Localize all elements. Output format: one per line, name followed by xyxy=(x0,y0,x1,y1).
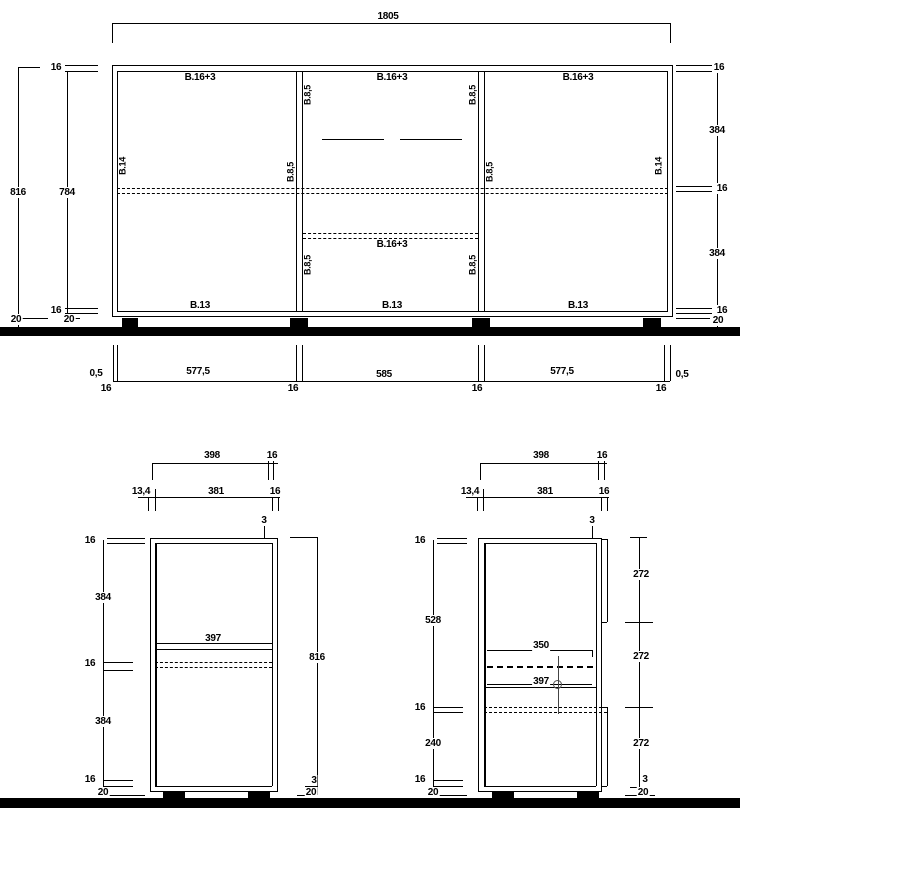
dim-tick xyxy=(433,707,463,708)
dim-opening-height: 384 xyxy=(94,592,112,603)
dim-shelf-depth: 397 xyxy=(532,676,550,687)
dim-drawer-depth: 350 xyxy=(532,640,550,651)
hidden-line xyxy=(117,188,668,189)
hidden-line xyxy=(155,662,272,663)
board-label-side: B.14 xyxy=(654,157,665,175)
dim-line-overall-width xyxy=(112,23,670,24)
dim-upper-opening: 528 xyxy=(424,615,442,626)
dim-tick xyxy=(676,313,712,314)
dim-line-right xyxy=(717,67,718,328)
dim-center-bay-width: 585 xyxy=(375,369,393,380)
dim-front-height: 272 xyxy=(632,738,650,749)
dim-panel-thickness: 16 xyxy=(51,305,62,316)
side-section-outline xyxy=(150,538,278,792)
shelf-edge-line xyxy=(322,139,384,140)
hidden-line xyxy=(484,707,607,708)
board-label-divider: B.8,5 xyxy=(468,85,479,105)
top-panel-line xyxy=(484,543,596,544)
side-section-outline xyxy=(478,538,602,792)
dim-tick xyxy=(625,622,653,623)
dim-line-left xyxy=(103,540,104,795)
dim-panel-thickness: 16 xyxy=(716,183,729,194)
dim-panel-thickness: 16 xyxy=(101,383,112,394)
extension-line xyxy=(117,345,118,381)
board-label-base: B.13 xyxy=(382,300,402,311)
dim-overall-height: 816 xyxy=(9,187,27,198)
dim-tick xyxy=(107,543,145,544)
board-label-base: B.13 xyxy=(568,300,588,311)
dim-panel-thickness: 16 xyxy=(85,535,96,546)
dim-opening-height: 384 xyxy=(94,716,112,727)
extension-line xyxy=(664,345,665,381)
dim-side-depth: 398 xyxy=(204,450,220,461)
dim-tick xyxy=(592,650,593,657)
board-label-center-shelf: B.16+3 xyxy=(377,239,408,250)
dim-tick xyxy=(103,662,133,663)
shelf-line xyxy=(155,649,272,650)
dim-tick xyxy=(65,308,98,309)
top-flap-front-line xyxy=(601,622,607,623)
dim-lower-opening: 240 xyxy=(424,738,442,749)
top-flap-front-line xyxy=(601,539,607,540)
dim-side-bay-width: 577,5 xyxy=(550,366,574,377)
dim-back-inset: 13,4 xyxy=(460,486,480,497)
dim-tick xyxy=(437,538,467,539)
dim-tick xyxy=(480,463,481,480)
dim-plinth-height: 20 xyxy=(637,787,650,798)
dim-panel-thickness: 16 xyxy=(269,486,282,497)
dim-tick xyxy=(676,318,710,319)
dim-tick xyxy=(676,71,712,72)
dim-front-gap: 3 xyxy=(589,515,594,526)
top-flap-front-line xyxy=(607,539,608,622)
dim-tick xyxy=(65,71,98,72)
technical-drawing-canvas: 1805 16 816 784 16 20 20 16 384 16 384 1… xyxy=(0,0,902,871)
board-label-divider: B.8,5 xyxy=(485,162,496,182)
shelf-edge-line xyxy=(400,139,462,140)
floor-line xyxy=(0,327,740,336)
dim-tick xyxy=(433,712,463,713)
dim-back-inset: 13,4 xyxy=(131,486,151,497)
bottom-panel-line xyxy=(484,786,596,787)
dim-panel-thickness: 16 xyxy=(51,62,62,73)
dim-front-height: 272 xyxy=(632,651,650,662)
dim-interior-depth: 381 xyxy=(536,486,554,497)
dim-side-bay-width: 577,5 xyxy=(186,366,210,377)
dim-overall-height: 816 xyxy=(308,652,326,663)
dim-panel-thickness: 16 xyxy=(288,383,299,394)
dim-tick xyxy=(18,67,40,68)
dim-front-gap: 3 xyxy=(641,774,648,785)
dim-tick xyxy=(630,537,647,538)
hidden-line-center xyxy=(303,233,478,234)
dim-panel-thickness: 16 xyxy=(85,658,96,669)
dim-front-gap: 3 xyxy=(310,775,317,786)
hidden-line xyxy=(155,667,272,668)
dim-panel-thickness: 16 xyxy=(85,774,96,785)
dim-tick xyxy=(155,489,156,511)
dim-plinth-height: 20 xyxy=(63,314,76,325)
dim-line-interior-depth xyxy=(138,497,280,498)
board-label-divider: B.8,5 xyxy=(286,162,297,182)
dim-tick xyxy=(433,780,463,781)
dim-tick xyxy=(290,537,317,538)
dim-tick xyxy=(625,707,653,708)
dim-panel-thickness: 16 xyxy=(415,774,426,785)
top-panel-line xyxy=(155,543,272,544)
dim-tick xyxy=(676,65,712,66)
dim-panel-thickness: 16 xyxy=(266,450,279,461)
board-label-top: B.16+3 xyxy=(563,72,594,83)
dim-tick xyxy=(670,23,671,43)
extension-line xyxy=(484,345,485,381)
dim-opening-height: 384 xyxy=(708,125,726,136)
dim-front-gap: 3 xyxy=(261,515,266,526)
dim-tick xyxy=(107,538,145,539)
extension-line xyxy=(670,345,671,381)
dim-plinth-height: 20 xyxy=(305,787,318,798)
dim-panel-thickness: 16 xyxy=(415,535,426,546)
dim-line-left xyxy=(433,540,434,795)
dim-front-height: 272 xyxy=(632,569,650,580)
dim-plinth-height: 20 xyxy=(10,314,23,325)
board-label-top: B.16+3 xyxy=(185,72,216,83)
extension-line xyxy=(302,345,303,381)
bottom-panel-line xyxy=(155,786,272,787)
dim-tick xyxy=(437,795,467,796)
dim-opening-height: 384 xyxy=(708,248,726,259)
shelf-line xyxy=(484,687,596,688)
divider-left xyxy=(296,71,303,312)
dim-panel-thickness: 16 xyxy=(596,450,609,461)
board-label-divider: B.8,5 xyxy=(303,85,314,105)
dim-interior-depth: 381 xyxy=(207,486,225,497)
extension-line xyxy=(113,345,114,381)
dim-tick xyxy=(152,463,153,480)
bottom-flap-front-line xyxy=(607,707,608,786)
dim-line-depth xyxy=(480,463,607,464)
dim-tick xyxy=(103,670,133,671)
dim-tick xyxy=(676,308,712,309)
dim-panel-thickness: 16 xyxy=(598,486,611,497)
front-panel-line xyxy=(272,543,273,786)
cabinet-inner-outline xyxy=(117,71,668,312)
dim-plinth-height: 20 xyxy=(427,787,440,798)
extension-line xyxy=(296,345,297,381)
dim-line-bays xyxy=(113,381,670,382)
dim-tick xyxy=(103,780,133,781)
board-label-base: B.13 xyxy=(190,300,210,311)
board-label-side: B.14 xyxy=(118,157,129,175)
dim-tick xyxy=(65,65,98,66)
dim-reveal-gap: 0,5 xyxy=(675,369,688,380)
dim-line-right xyxy=(317,537,318,795)
dim-tick xyxy=(483,489,484,511)
board-label-divider: B.8,5 xyxy=(468,255,479,275)
extension-line xyxy=(478,345,479,381)
back-panel-line xyxy=(155,543,157,786)
divider-right xyxy=(478,71,485,312)
dim-overall-width: 1805 xyxy=(377,11,398,22)
center-line xyxy=(558,656,559,714)
hidden-line xyxy=(484,712,607,713)
dim-tick xyxy=(107,795,145,796)
dim-plinth-height: 20 xyxy=(97,787,110,798)
dim-panel-thickness: 16 xyxy=(415,702,426,713)
bottom-flap-front-line xyxy=(601,786,607,787)
dim-tick xyxy=(437,543,467,544)
dim-panel-thickness: 16 xyxy=(713,62,726,73)
drawer-hidden-line xyxy=(487,666,593,668)
leader-line xyxy=(592,526,593,538)
front-panel-line xyxy=(596,543,597,786)
dim-plinth-height: 20 xyxy=(712,315,725,326)
hidden-line xyxy=(117,193,668,194)
dim-interior-height: 784 xyxy=(58,187,76,198)
dim-tick xyxy=(676,186,712,187)
dim-tick xyxy=(676,191,712,192)
dim-side-depth: 398 xyxy=(533,450,549,461)
floor-line xyxy=(0,798,740,808)
dim-shelf-depth: 397 xyxy=(205,633,221,644)
dim-panel-thickness: 16 xyxy=(472,383,483,394)
dim-tick xyxy=(112,23,113,43)
board-label-top: B.16+3 xyxy=(377,72,408,83)
dim-line-depth xyxy=(152,463,278,464)
back-panel-line xyxy=(484,543,486,786)
leader-line xyxy=(264,526,265,538)
dim-line-interior-depth xyxy=(466,497,609,498)
dim-reveal-gap: 0,5 xyxy=(89,368,102,379)
board-label-divider: B.8,5 xyxy=(303,255,314,275)
dim-panel-thickness: 16 xyxy=(656,383,667,394)
